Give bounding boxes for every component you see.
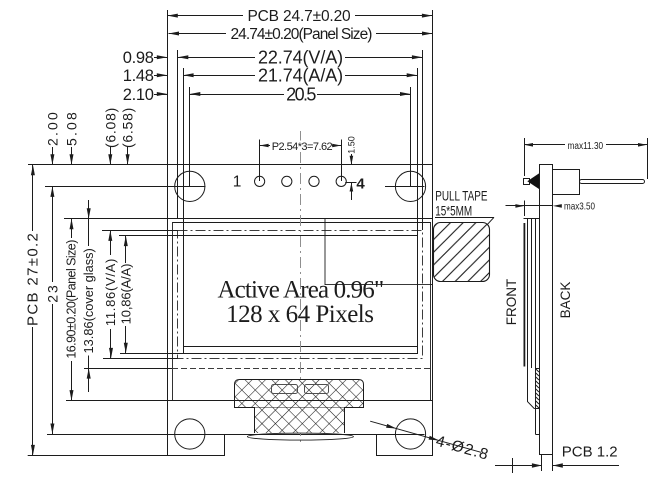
svg-text:1.50: 1.50: [346, 136, 356, 154]
svg-text:24.74±0.20(Panel Size): 24.74±0.20(Panel Size): [231, 26, 373, 43]
svg-text:2.00: 2.00: [44, 110, 60, 146]
svg-text:5.08: 5.08: [64, 110, 80, 146]
svg-text:15*5MM: 15*5MM: [435, 203, 472, 219]
svg-text:P2.54*3=7.62: P2.54*3=7.62: [272, 141, 333, 153]
svg-text:4: 4: [356, 176, 365, 193]
svg-text:10,86(A/A): 10,86(A/A): [118, 264, 133, 325]
svg-text:BACK: BACK: [558, 282, 573, 319]
svg-text:4-Ø2.8: 4-Ø2.8: [434, 433, 491, 464]
svg-text:11.86(V/A): 11.86(V/A): [103, 258, 118, 326]
svg-text:Active Area 0.96": Active Area 0.96": [217, 277, 383, 304]
svg-text:16.90±0.20(Panel Size): 16.90±0.20(Panel Size): [65, 240, 79, 359]
svg-text:2.10: 2.10: [123, 86, 154, 104]
svg-text:(6.08): (6.08): [102, 107, 118, 148]
svg-text:1.48: 1.48: [123, 67, 154, 85]
svg-text:0.98: 0.98: [123, 49, 154, 67]
svg-text:13.86(cover glass): 13.86(cover glass): [81, 248, 96, 353]
svg-text:PCB 27±0.2: PCB 27±0.2: [24, 232, 41, 326]
svg-text:20.5: 20.5: [286, 85, 316, 105]
svg-text:(6.58): (6.58): [120, 107, 136, 148]
svg-text:21.74(A/A): 21.74(A/A): [258, 65, 343, 85]
svg-text:PCB 1.2: PCB 1.2: [562, 444, 618, 461]
svg-text:PCB 24.7±0.20: PCB 24.7±0.20: [247, 8, 351, 25]
svg-text:22.74(V/A): 22.74(V/A): [258, 47, 343, 67]
svg-text:128 x 64 Pixels: 128 x 64 Pixels: [226, 301, 373, 328]
svg-text:max11.30: max11.30: [567, 140, 603, 152]
svg-text:FRONT: FRONT: [504, 279, 519, 326]
svg-text:1: 1: [233, 173, 242, 190]
svg-text:23: 23: [44, 283, 60, 303]
svg-text:max3.50: max3.50: [564, 201, 595, 212]
